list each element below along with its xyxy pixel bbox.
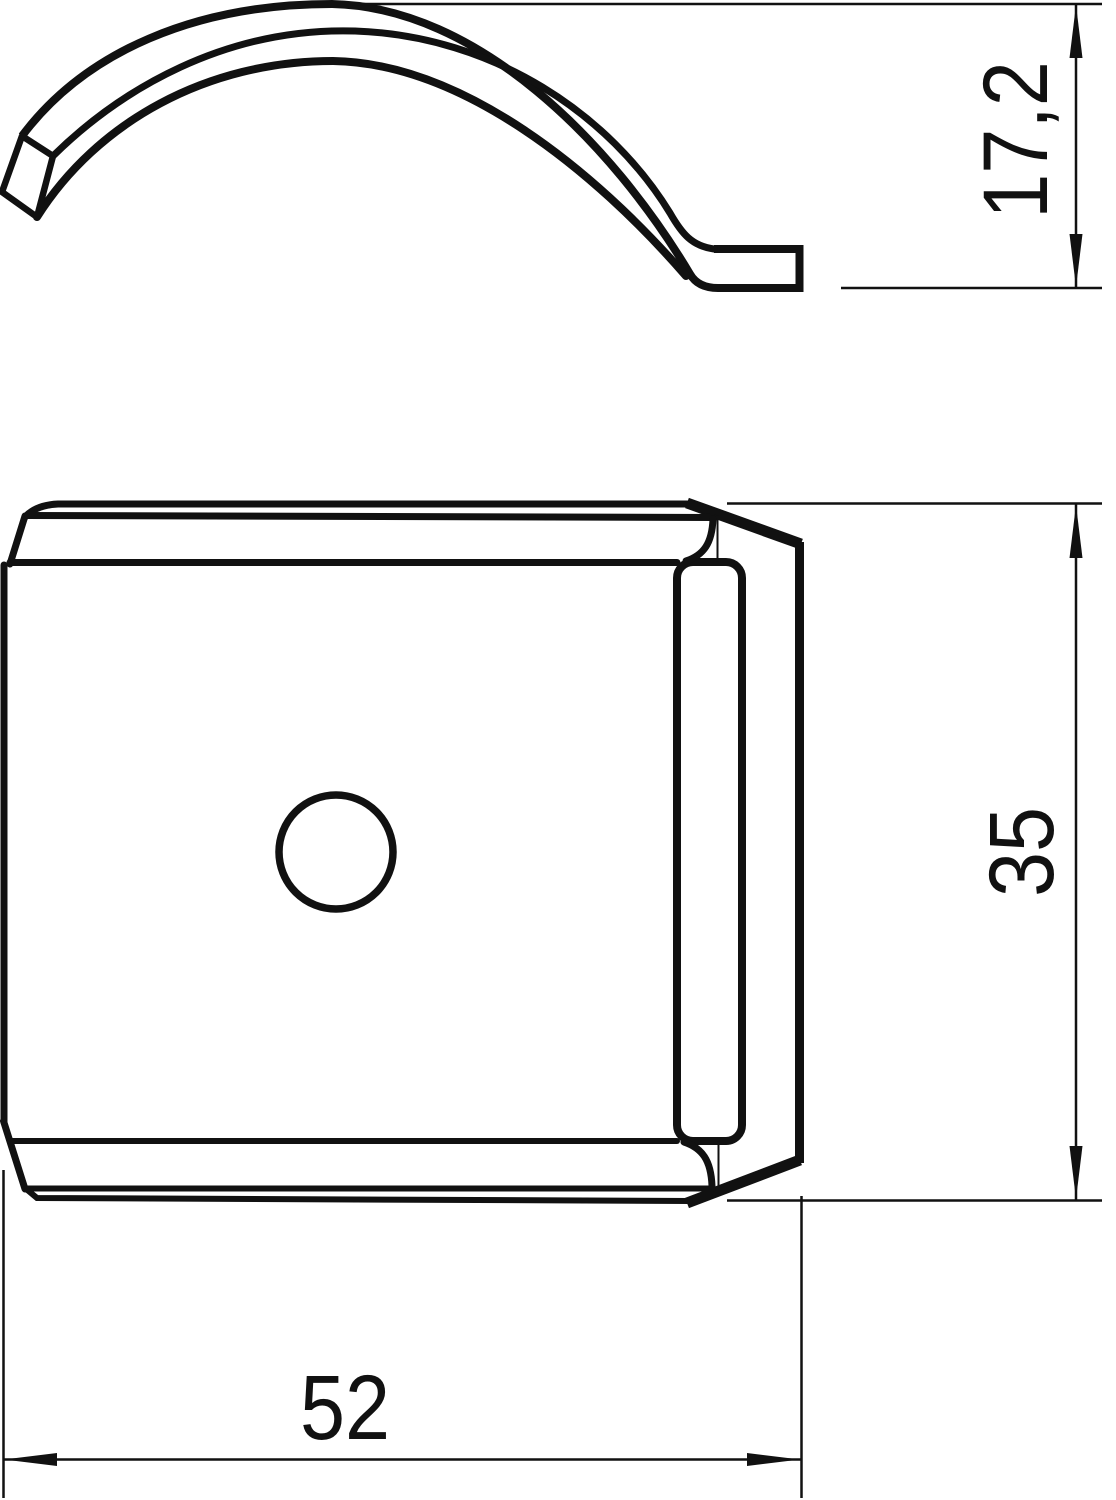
drawing-linework [0, 0, 1116, 1500]
arrow-right-icon [747, 1453, 800, 1466]
plate-second-top-edge [28, 516, 714, 518]
plate-top-right-slope [687, 503, 801, 544]
dimension-52 [3, 1170, 802, 1498]
dim-label-plate-width: 52 [300, 1362, 390, 1454]
plate-front-view [4, 503, 802, 1203]
plate-top-left-chamfer [10, 516, 25, 564]
side-profile-view [2, 4, 800, 288]
plate-side-band [677, 562, 742, 1141]
dim-label-plate-height: 35 [976, 807, 1068, 897]
arrow-down-icon [1070, 234, 1083, 287]
arrow-down-icon [1070, 1146, 1083, 1199]
fold-curve-bottom-right [684, 1142, 712, 1186]
plate-bottom-left-chamfer [4, 1121, 26, 1189]
dim-label-profile-height: 17,2 [970, 61, 1062, 219]
arrow-left-icon [4, 1453, 57, 1466]
arrow-up-icon [1070, 505, 1083, 558]
plate-bottom-right-slope [687, 1160, 800, 1203]
technical-drawing-canvas: 17,2 35 52 [0, 0, 1116, 1500]
fold-curve-top-right [686, 519, 713, 561]
arrow-up-icon [1070, 5, 1083, 58]
center-hole [279, 795, 393, 909]
profile-outer-curve-and-foot [22, 4, 800, 288]
